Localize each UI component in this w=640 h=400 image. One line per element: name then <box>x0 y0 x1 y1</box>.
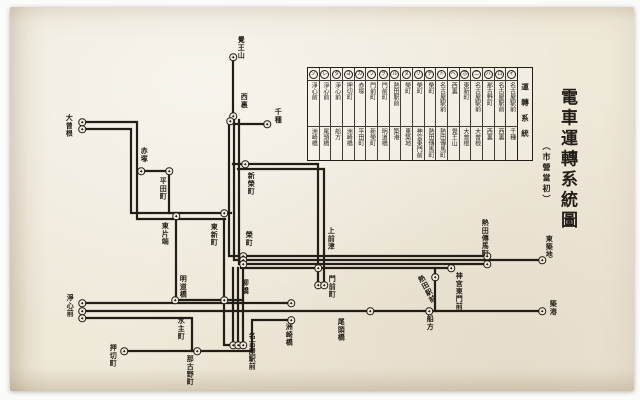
station-label: 柳橋 <box>241 279 248 294</box>
legend-route-mark: ホ <box>460 70 469 79</box>
legend-route-mark-cell: ハ <box>483 68 494 81</box>
station-dot <box>193 347 201 355</box>
legend-route-from-cell: 名古屋駅前 <box>436 81 447 127</box>
legend-route-mark: ヘ <box>449 70 458 79</box>
station-label: 榮町 <box>245 231 252 246</box>
legend-route-mark: ハ <box>484 70 493 79</box>
legend-route-from-cell: 門前町 <box>366 81 377 127</box>
legend-route-column: ル熱田駅前築港 <box>389 68 401 160</box>
legend-route-mark: ト <box>437 70 446 79</box>
legend-route-mark-cell: カ <box>355 68 366 81</box>
legend-route-to-cell: 大曾根 <box>460 127 471 160</box>
legend-route-to-cell: 西裏 <box>483 127 494 160</box>
legend-route-from-cell: 門前町 <box>378 81 389 127</box>
station-label: 千種 <box>274 108 281 123</box>
station-label: 名古屋駅前 <box>248 332 255 370</box>
legend-route-mark: ニ <box>472 70 481 79</box>
legend-route-from: 東新町 <box>462 81 468 126</box>
legend-route-mark-cell: ヨ <box>343 68 354 81</box>
legend-route-from-cell: 榮町 <box>413 81 424 127</box>
legend-route-from-cell: 淨心前 <box>331 81 342 127</box>
legend-route-mark-cell: チ <box>425 68 436 81</box>
legend-route-column: ヌ榮町東築地 <box>400 68 412 160</box>
station-dot <box>263 120 271 128</box>
station-dot <box>137 167 145 175</box>
legend-route-mark-cell: リ <box>413 68 424 81</box>
station-dot <box>220 296 228 304</box>
legend-route-column: ヲ門前町明道橋 <box>377 68 389 160</box>
station-dot <box>447 264 455 272</box>
station-dot <box>431 273 439 281</box>
legend-route-mark-cell: ホ <box>460 68 471 81</box>
legend-route-column: ロ名古屋駅前西裏 <box>494 68 506 160</box>
legend-route-to: 明道橋 <box>380 127 386 160</box>
legend-route-from: 榮町 <box>415 81 421 126</box>
legend-route-to-cell: 尾頭橋 <box>320 127 331 160</box>
legend-route-mark: リ <box>414 70 423 79</box>
legend-route-mark-cell: ロ <box>495 68 506 81</box>
legend-route-to: 西裏 <box>485 127 491 160</box>
station-dot <box>425 307 433 315</box>
legend-route-to: 覺王山 <box>450 127 456 160</box>
legend-route-from: 榮町 <box>427 81 433 126</box>
legend-route-to: 船方 <box>334 127 340 160</box>
station-dot <box>120 347 128 355</box>
legend-route-to: 熱田傳馬町 <box>439 127 445 160</box>
legend-route-column: レ淨心前尾頭橋 <box>319 68 331 160</box>
station-dot <box>78 125 86 133</box>
legend-route-to-cell: 千種 <box>506 127 517 160</box>
station-label: 船方 <box>426 315 433 330</box>
legend-route-to-cell: 覺王山 <box>448 127 459 160</box>
legend-route-from-cell: 押切町 <box>343 81 354 127</box>
station-dot <box>239 341 247 349</box>
station-dot <box>314 264 322 272</box>
legend-route-to-cell: 新榮町 <box>366 127 377 160</box>
legend-route-from-cell: 西裏 <box>448 81 459 127</box>
legend-route-mark: ヲ <box>379 70 388 79</box>
station-dot <box>287 299 295 307</box>
legend-route-mark-cell: イ <box>506 68 517 81</box>
station-dot <box>171 296 179 304</box>
station-label: 熱田傳馬町 <box>481 219 488 257</box>
legend-route-mark: ソ <box>309 70 318 79</box>
legend-route-to: 大曾根 <box>462 127 468 160</box>
legend-route-to: 洲崎橋 <box>345 127 351 160</box>
legend-route-column: ハ那古野町西裏 <box>482 68 494 160</box>
station-label: 平田町 <box>159 177 166 200</box>
station-label: 新榮町 <box>247 172 254 195</box>
scanned-book-page: 大曾根覺王山西裏千種赤塚平田町東片端東新町新榮町榮町上前津門前町明道橋柳橋淨心前… <box>0 0 640 400</box>
legend-route-mark: ロ <box>495 70 504 79</box>
legend-route-mark-cell: ル <box>390 68 401 81</box>
legend-route-from-cell: 名古屋駅前 <box>506 81 517 127</box>
station-label: 淨心前 <box>66 294 73 317</box>
station-dot <box>241 160 249 168</box>
legend-route-mark: ワ <box>367 70 376 79</box>
legend-route-column: タ淨心前船方 <box>330 68 342 160</box>
route-legend-table: 運轉系統 イ名古屋駅前千種ロ名古屋駅前西裏ハ那古野町西裏ニ名古屋駅前大曾根ホ東新… <box>307 67 533 161</box>
station-dot <box>226 117 234 125</box>
station-dot <box>483 260 491 268</box>
legend-route-to-cell: 大曾根 <box>471 127 482 160</box>
legend-header-cell: 運轉系統 <box>517 68 532 160</box>
legend-route-mark-cell: ヌ <box>401 68 412 81</box>
legend-route-mark-cell: ニ <box>471 68 482 81</box>
station-label: 明道橋 <box>179 275 186 298</box>
legend-route-column: リ榮町神宮東門前 <box>412 68 424 160</box>
legend-route-mark: レ <box>320 70 329 79</box>
station-label: 水主町 <box>177 317 184 340</box>
legend-route-mark: ヨ <box>344 70 353 79</box>
legend-route-from: 門前町 <box>369 81 375 126</box>
legend-route-from: 名古屋駅前 <box>439 81 445 126</box>
station-label: 門前町 <box>328 275 335 298</box>
station-label: 洲崎橋 <box>285 323 292 346</box>
legend-route-to-cell: 船方 <box>331 127 342 160</box>
station-dot <box>239 260 247 268</box>
legend-route-from-cell: 榮町 <box>425 81 436 127</box>
legend-route-to: 尾頭橋 <box>322 127 328 160</box>
legend-route-to: 洲崎橋 <box>310 127 316 160</box>
station-dot <box>78 314 86 322</box>
legend-route-to-cell: 西裏 <box>495 127 506 160</box>
legend-route-from-cell: 淨心前 <box>308 81 319 127</box>
station-label: 築港 <box>549 300 556 315</box>
legend-header-label: 運轉系統 <box>520 83 531 145</box>
station-label: 那古野町 <box>186 355 193 385</box>
legend-route-column: チ榮町熱田傳馬町 <box>424 68 436 160</box>
legend-route-to: 東築地 <box>404 127 410 160</box>
legend-route-from: 名古屋駅前 <box>509 81 515 126</box>
station-dot <box>229 53 237 61</box>
legend-route-to-cell: 熱田傳馬町 <box>425 127 436 160</box>
station-label: 覺王山 <box>237 36 244 59</box>
station-label: 上前津 <box>327 227 334 250</box>
station-label: 神宮東門前 <box>455 272 462 310</box>
page-subtitle: （市營當初） <box>541 142 552 205</box>
legend-route-column: ヨ押切町洲崎橋 <box>342 68 354 160</box>
station-label: 東築地 <box>545 235 552 258</box>
legend-route-column: ト名古屋駅前熱田傳馬町 <box>435 68 447 160</box>
legend-route-from: 押切町 <box>345 81 351 126</box>
station-dot <box>538 307 546 315</box>
legend-route-from: 門前町 <box>380 81 386 126</box>
station-label: 東片端 <box>161 222 168 245</box>
legend-route-to-cell: 平田町 <box>355 127 366 160</box>
station-dot <box>172 212 180 220</box>
legend-route-mark-cell: ト <box>436 68 447 81</box>
station-label: 東新町 <box>210 223 217 246</box>
legend-route-from: 名古屋駅前 <box>474 81 480 126</box>
station-label: 尾頭橋 <box>337 318 344 341</box>
station-dot <box>78 299 86 307</box>
legend-route-to-cell: 築港 <box>390 127 401 160</box>
legend-route-from-cell: 赤塚 <box>355 81 366 127</box>
legend-route-to-cell: 熱田傳馬町 <box>436 127 447 160</box>
legend-route-to: 平田町 <box>357 127 363 160</box>
legend-route-from-cell: 榮町 <box>401 81 412 127</box>
legend-route-from-cell: 淨心前 <box>320 81 331 127</box>
legend-route-mark-cell: ソ <box>308 68 319 81</box>
legend-route-column: ソ淨心前洲崎橋 <box>308 68 319 160</box>
legend-route-mark-cell: ヲ <box>378 68 389 81</box>
legend-route-from-cell: 熱田駅前 <box>390 81 401 127</box>
legend-route-mark: タ <box>332 70 341 79</box>
legend-route-from: 名古屋駅前 <box>497 81 503 126</box>
legend-route-to: 熱田傳馬町 <box>427 127 433 160</box>
station-dot <box>220 209 228 217</box>
legend-route-to: 西裏 <box>497 127 503 160</box>
legend-route-to: 千種 <box>509 127 515 160</box>
page-title: 電車運轉系統圖 <box>555 88 580 232</box>
legend-route-mark-cell: ワ <box>366 68 377 81</box>
legend-route-to-cell: 明道橋 <box>378 127 389 160</box>
station-dot <box>320 281 328 289</box>
station-label: 西裏 <box>240 93 247 108</box>
legend-route-mark: チ <box>425 70 434 79</box>
legend-route-mark-cell: タ <box>331 68 342 81</box>
station-dot <box>165 167 173 175</box>
legend-route-to-cell: 洲崎橋 <box>343 127 354 160</box>
legend-route-from: 那古野町 <box>485 81 491 126</box>
legend-route-to: 築港 <box>392 127 398 160</box>
legend-route-from-cell: 名古屋駅前 <box>471 81 482 127</box>
legend-route-to: 大曾根 <box>474 127 480 160</box>
legend-route-to: 神宮東門前 <box>415 127 421 160</box>
station-label: 赤塚 <box>140 147 147 162</box>
legend-route-from: 赤塚 <box>357 81 363 126</box>
legend-route-to-cell: 神宮東門前 <box>413 127 424 160</box>
legend-route-mark: ル <box>390 70 399 79</box>
line-joshin-jog <box>82 318 192 351</box>
station-label: 押切町 <box>109 344 116 367</box>
legend-route-to-cell: 洲崎橋 <box>308 127 319 160</box>
legend-route-mark: ヌ <box>402 70 411 79</box>
station-label: 大曾根 <box>65 114 72 137</box>
legend-route-from-cell: 那古野町 <box>483 81 494 127</box>
legend-route-column: カ赤塚平田町 <box>354 68 366 160</box>
legend-route-mark: カ <box>355 70 364 79</box>
legend-route-mark: イ <box>507 70 516 79</box>
legend-route-column: ニ名古屋駅前大曾根 <box>470 68 482 160</box>
legend-route-to-cell: 東築地 <box>401 127 412 160</box>
legend-route-column: ワ門前町新榮町 <box>365 68 377 160</box>
legend-route-from: 榮町 <box>404 81 410 126</box>
legend-route-to: 新榮町 <box>369 127 375 160</box>
legend-route-column: イ名古屋駅前千種 <box>505 68 517 160</box>
legend-route-from: 淨心前 <box>322 81 328 126</box>
legend-route-from-cell: 名古屋駅前 <box>495 81 506 127</box>
legend-route-from: 淨心前 <box>334 81 340 126</box>
station-dot <box>366 307 374 315</box>
legend-route-column: ヘ西裏覺王山 <box>447 68 459 160</box>
line-oshikiri <box>124 320 291 351</box>
legend-route-mark-cell: レ <box>320 68 331 81</box>
legend-route-from: 熱田駅前 <box>392 81 398 126</box>
legend-route-from: 西裏 <box>450 81 456 126</box>
legend-route-column: ホ東新町大曾根 <box>459 68 471 160</box>
legend-route-mark-cell: ヘ <box>448 68 459 81</box>
legend-route-from-cell: 東新町 <box>460 81 471 127</box>
legend-route-from: 淨心前 <box>310 81 316 126</box>
